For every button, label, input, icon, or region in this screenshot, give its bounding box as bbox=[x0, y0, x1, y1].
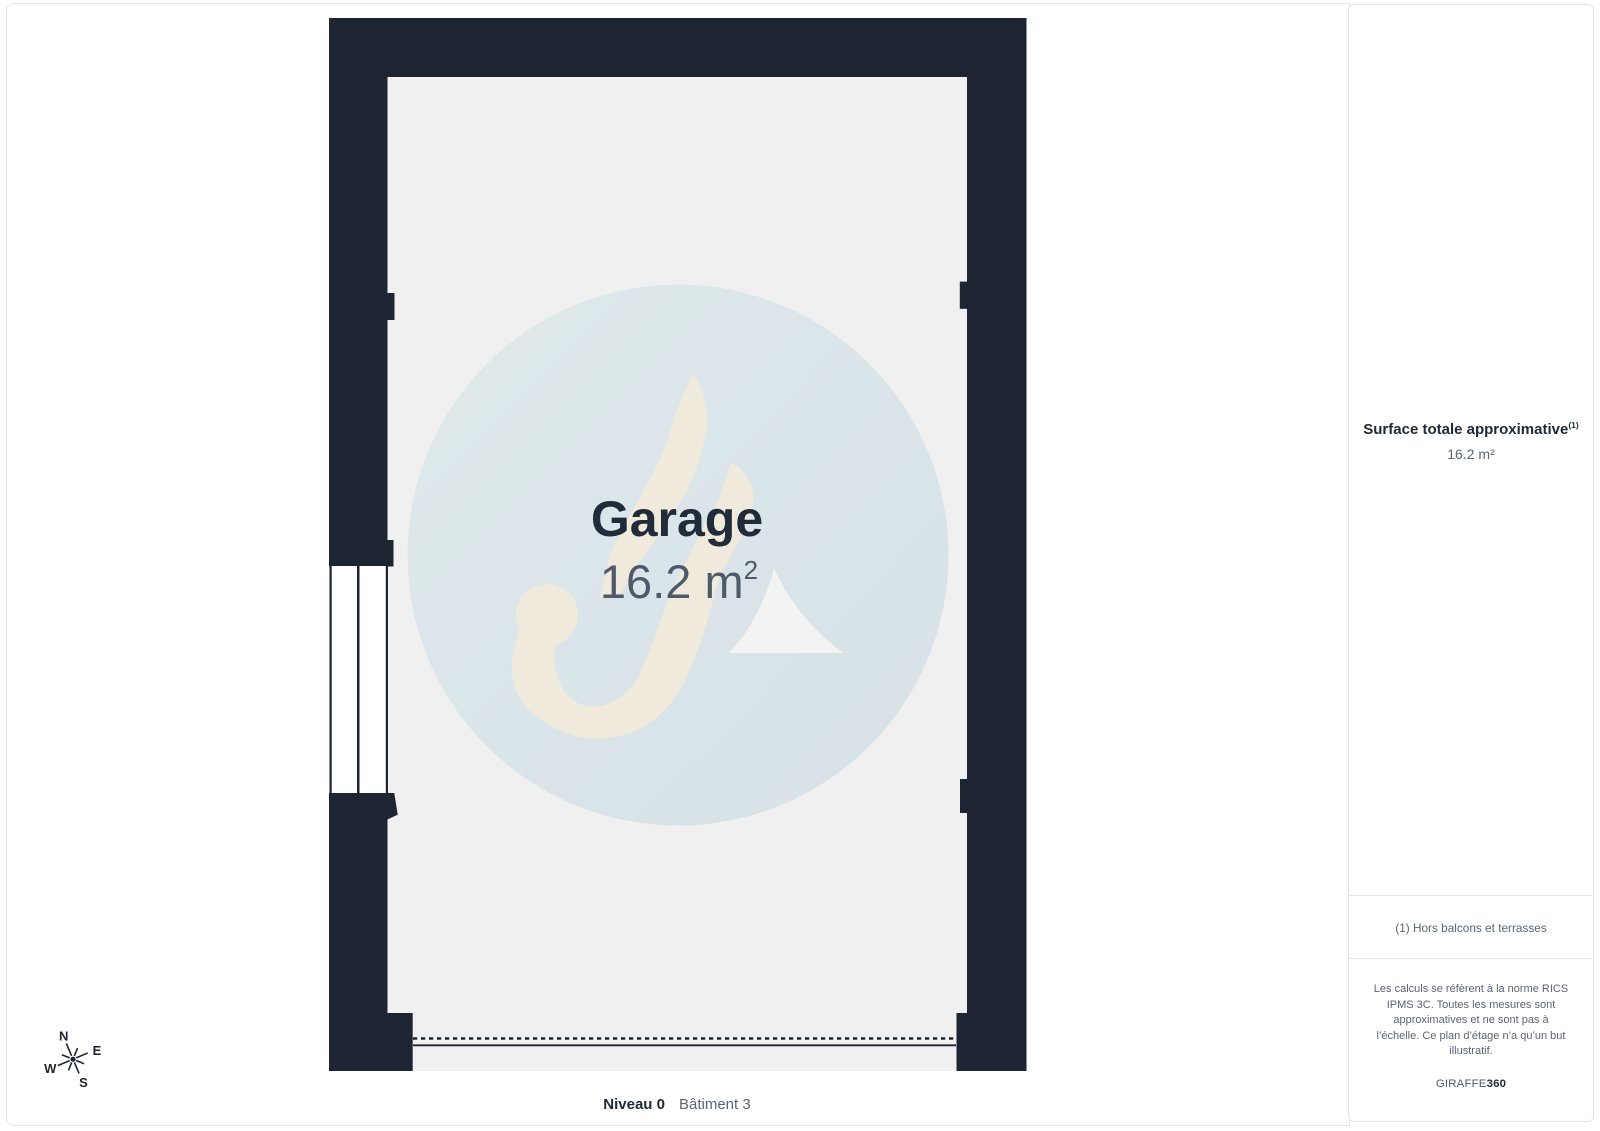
svg-text:E: E bbox=[93, 1043, 102, 1058]
svg-text:S: S bbox=[79, 1075, 88, 1090]
svg-text:N: N bbox=[59, 1029, 68, 1044]
svg-text:W: W bbox=[44, 1061, 57, 1076]
